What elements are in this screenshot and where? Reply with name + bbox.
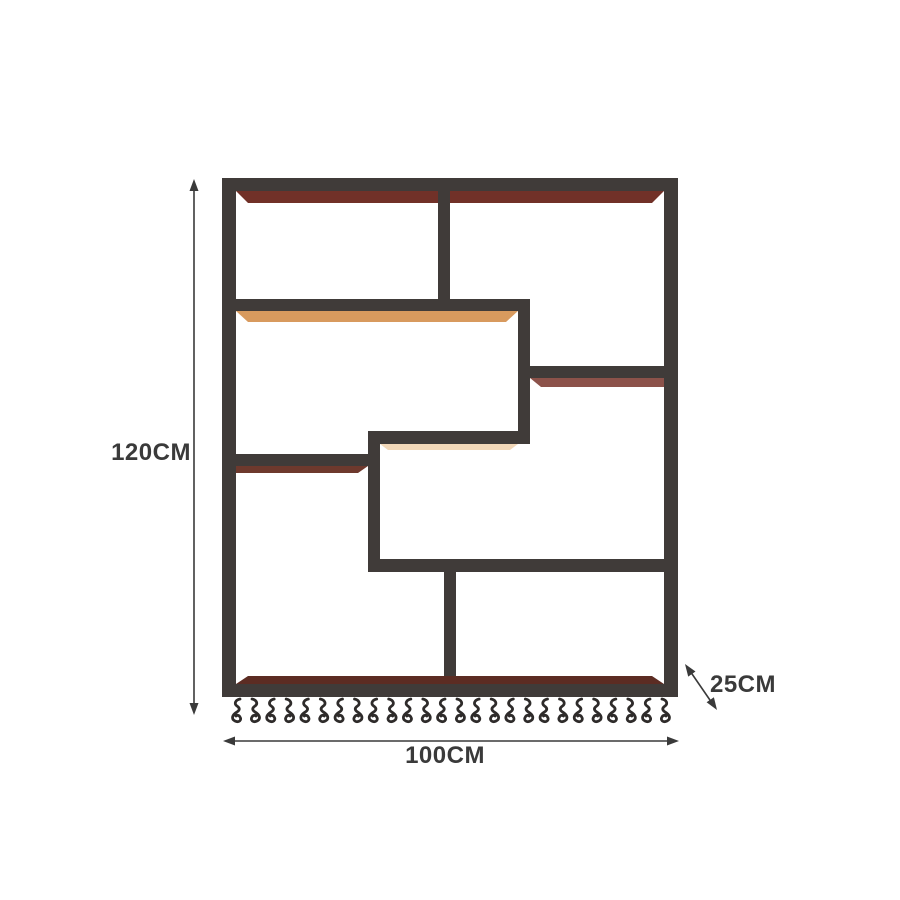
stemware-hanger-hook-icon <box>540 699 548 722</box>
right-shelf-bar <box>530 366 664 378</box>
arrow-down-icon <box>190 703 199 715</box>
product-diagram-canvas: 120CM 100CM 25CM <box>0 0 900 900</box>
second-shelf-bar <box>236 299 530 311</box>
stemware-hanger-hook-icon <box>388 699 396 722</box>
stemware-hanger-hook-icon <box>559 699 567 722</box>
depth-dimension: 25CM <box>685 664 776 710</box>
arrow-up-icon <box>190 179 199 191</box>
stemware-hanger-hook-icon <box>354 699 362 722</box>
depth-dimension-line <box>690 671 712 703</box>
stemware-hanger-hook-icon <box>335 699 343 722</box>
second-shelf-wood-panel <box>236 311 518 322</box>
middle-left-post <box>368 431 380 572</box>
stemware-hanger-hook-icon <box>574 699 582 722</box>
stemware-hanger-hook-icon <box>472 699 480 722</box>
arrow-down-right-icon <box>707 697 717 710</box>
stemware-hanger-hook-icon <box>301 699 309 722</box>
stemware-hanger-hook-icon <box>251 699 259 722</box>
height-dimension-label: 120CM <box>111 439 191 466</box>
stemware-hanger-hook-icon <box>286 699 294 722</box>
stemware-hanger-hook-icon <box>403 699 411 722</box>
depth-dimension-label: 25CM <box>710 671 776 698</box>
stemware-hanger-hook-icon <box>320 699 328 722</box>
left-shelf-wood-panel <box>236 466 368 473</box>
stemware-hanger-hook-icon <box>438 699 446 722</box>
stemware-hanger-hook-icon <box>422 699 430 722</box>
left-shelf-bar <box>236 454 368 466</box>
stemware-hanger-hook-icon <box>627 699 635 722</box>
stemware-hanger-hook-icon <box>491 699 499 722</box>
arrow-left-icon <box>223 737 235 746</box>
stemware-hanger-hook-icon <box>661 699 669 722</box>
top-row-divider-post <box>438 191 450 303</box>
stemware-hanger-hook-icon <box>506 699 514 722</box>
arrow-up-left-icon <box>685 664 696 677</box>
width-dimension-label: 100CM <box>405 742 485 769</box>
frame-left-post <box>222 178 236 697</box>
stemware-hanger-hook-icon <box>369 699 377 722</box>
stemware-hanger-hook-icon <box>643 699 651 722</box>
stemware-hanger-hook-icon <box>456 699 464 722</box>
height-dimension: 120CM <box>111 179 198 715</box>
right-shelf-wood-panel <box>530 378 664 387</box>
arrow-right-icon <box>667 737 679 746</box>
frame-top-bar <box>222 178 678 191</box>
stemware-hanger-hook-icon <box>608 699 616 722</box>
bottom-shelf-wood-panel <box>236 676 664 684</box>
wine-rack-dimension-diagram: 120CM 100CM 25CM <box>0 0 900 900</box>
stemware-hanger-hook-icon <box>233 699 241 722</box>
middle-upper-shelf-bar <box>368 431 530 444</box>
bottom-row-divider-post <box>444 572 456 676</box>
second-shelf-end-post <box>518 299 530 444</box>
frame-right-post <box>664 178 678 697</box>
middle-lower-shelf-bar <box>368 559 664 572</box>
stemware-hanger-hook-icon <box>593 699 601 722</box>
stemware-hanger-hook-icon <box>525 699 533 722</box>
middle-shelf-underglow <box>380 444 518 450</box>
stemware-hanger-row <box>233 699 670 722</box>
width-dimension: 100CM <box>223 737 679 770</box>
stemware-hanger-hook-icon <box>267 699 275 722</box>
frame-bottom-bar <box>222 684 678 697</box>
